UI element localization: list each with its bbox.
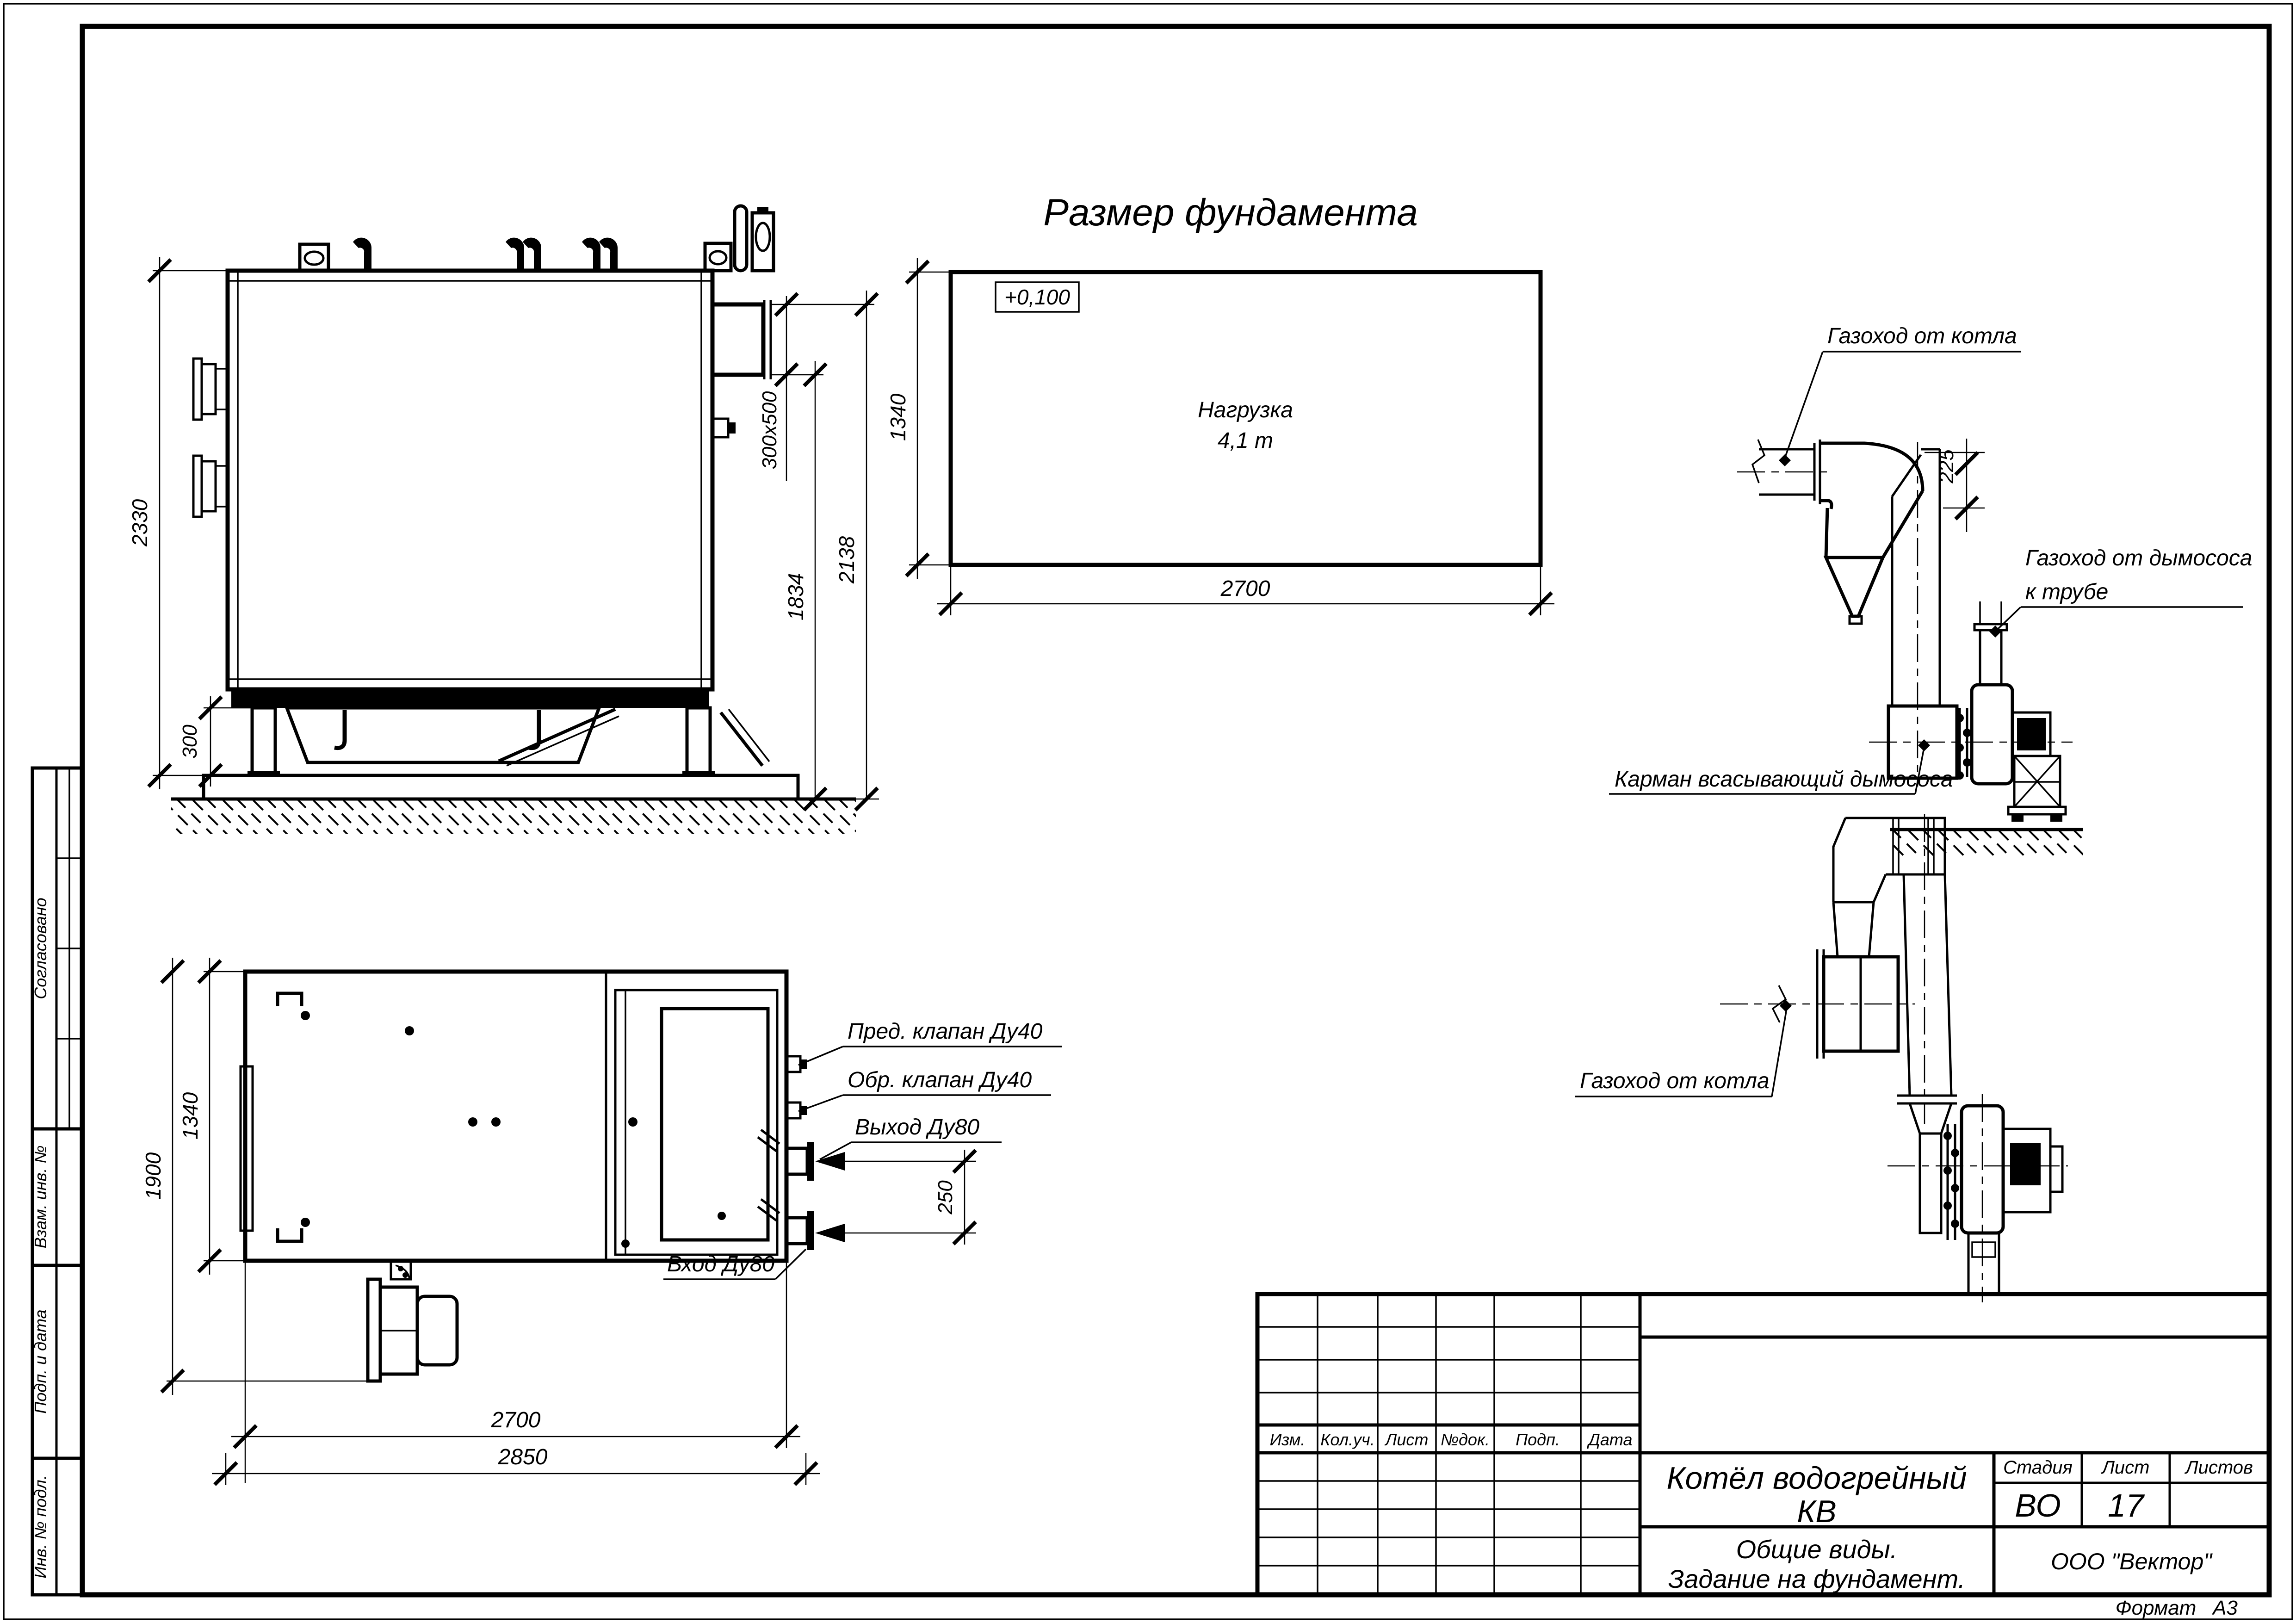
dim-plan-1900-text: 1900 xyxy=(141,1152,165,1200)
detail1-label-pocket: Карман всасывающий дымососа xyxy=(1615,767,1953,792)
dim-fp-2700: 2700 xyxy=(937,565,1554,615)
left-ports-icon xyxy=(193,359,228,517)
burner xyxy=(368,1261,457,1381)
drawing-canvas: Согласовано Взам. инв. № Подп. и дата Ин… xyxy=(0,0,2296,1623)
label-check-valve: Обр. клапан Ду40 xyxy=(848,1068,1032,1092)
detail2-fan xyxy=(1888,1094,2068,1302)
foundation-slab xyxy=(171,775,856,834)
fan-motor xyxy=(2008,712,2066,822)
dim-2330: 2330 xyxy=(128,257,228,789)
safety-valve-stack-icon xyxy=(735,206,774,271)
load-text-1: Нагрузка xyxy=(1198,398,1293,422)
stamp-inv-number: Инв. № подл. xyxy=(31,1475,50,1578)
safety-valve-stub xyxy=(786,1056,807,1072)
margin-stamps: Согласовано Взам. инв. № Подп. и дата Ин… xyxy=(31,768,82,1595)
view-title: Размер фундамента xyxy=(1043,192,1418,234)
dim-300: 300 xyxy=(179,696,252,787)
outlet-nozzle xyxy=(786,1142,845,1181)
label-inlet: Вход Ду80 xyxy=(667,1252,774,1276)
duct-detail-side: Газоход от котла 225 xyxy=(1609,324,2252,857)
detail1-label-boiler-duct: Газоход от котла xyxy=(1827,324,2017,348)
stamp-replace-inv: Взам. инв. № xyxy=(31,1146,50,1249)
dim-fp-1340-text: 1340 xyxy=(886,393,910,441)
dim-2330-text: 2330 xyxy=(128,499,152,547)
label-safety-valve: Пред. клапан Ду40 xyxy=(848,1019,1043,1044)
revision-headers: Изм. Кол.уч. Лист №док. Подп. Дата xyxy=(1270,1430,1633,1449)
skid-band xyxy=(231,689,709,708)
duct-detail-plan: Газоход от котла xyxy=(1575,814,2068,1302)
dim-plan-2850-text: 2850 xyxy=(498,1445,548,1469)
col-koluch: Кол.уч. xyxy=(1320,1430,1374,1449)
sheet-number: 17 xyxy=(2108,1487,2145,1524)
title-block: Изм. Кол.уч. Лист №док. Подп. Дата Котёл… xyxy=(1257,1294,2269,1595)
detail1-label-to-stack-2: к трубе xyxy=(2025,580,2108,604)
dim-1834-text: 1834 xyxy=(784,573,808,620)
sheets-label: Листов xyxy=(2184,1457,2253,1478)
col-podp: Подп. xyxy=(1516,1430,1560,1449)
label-outlet: Выход Ду80 xyxy=(855,1115,979,1140)
fan-casing xyxy=(1972,685,2012,784)
ground-hatch xyxy=(171,800,856,834)
format-label: Формат xyxy=(2116,1597,2197,1619)
inlet-nozzle xyxy=(786,1211,845,1250)
stamp-sign-date: Подп. и дата xyxy=(31,1309,50,1413)
dim-300x500: 300x500 xyxy=(758,293,874,481)
elevation-mark: +0,100 xyxy=(1004,285,1070,309)
col-list: Лист xyxy=(1385,1430,1429,1449)
foundation-plan: +0,100 Нагрузка 4,1 т 1340 2700 xyxy=(886,258,1554,615)
dim-fp-2700-text: 2700 xyxy=(1220,576,1270,601)
side-view: 2330 300 300x500 1834 2138 xyxy=(128,206,879,834)
dim-300-text: 300 xyxy=(179,725,201,759)
dim-plan-2850: 2850 xyxy=(212,1445,820,1485)
stamp-agreed: Согласовано xyxy=(31,898,50,999)
detail2-label-boiler-duct: Газоход от котла xyxy=(1580,1069,1770,1093)
dim-2138-text: 2138 xyxy=(835,536,859,584)
company-name: ООО "Вектор" xyxy=(2051,1549,2213,1574)
dim-plan-1340-text: 1340 xyxy=(178,1092,202,1140)
lifting-hooks-icon xyxy=(353,238,618,271)
dim-plan-1340: 1340 xyxy=(178,958,245,1275)
ash-pan xyxy=(287,708,769,766)
dim-300x500-text: 300x500 xyxy=(758,391,781,469)
product-title-1: Котёл водогрейный xyxy=(1666,1461,1967,1496)
dim-250: 250 xyxy=(845,1150,976,1245)
col-izm: Изм. xyxy=(1270,1430,1306,1449)
gas-outlet-duct xyxy=(712,300,771,379)
detail1-label-to-stack-1: Газоход от дымососа xyxy=(2025,546,2252,570)
stage-value: ВО xyxy=(2015,1487,2061,1524)
dim-fp-1340: 1340 xyxy=(886,258,951,579)
sheet-label: Лист xyxy=(2101,1457,2150,1478)
drain-stub-icon xyxy=(712,419,736,437)
plan-view: Пред. клапан Ду40 Обр. клапан Ду40 Выход… xyxy=(141,958,1062,1485)
dim-1834: 1834 xyxy=(784,361,826,810)
dim-250-text: 250 xyxy=(934,1180,957,1215)
dim-225: 225 xyxy=(1925,439,1985,532)
support-legs xyxy=(248,708,715,775)
col-data: Дата xyxy=(1587,1430,1633,1449)
format-note: Формат А3 xyxy=(2116,1597,2238,1619)
col-ndok: №док. xyxy=(1441,1430,1490,1449)
check-valve-stub xyxy=(786,1103,807,1118)
drawing-sheet: Согласовано Взам. инв. № Подп. и дата Ин… xyxy=(0,0,2296,1623)
format-value: А3 xyxy=(2211,1597,2238,1619)
doc-title-1: Общие виды. xyxy=(1736,1535,1898,1564)
load-text-2: 4,1 т xyxy=(1218,428,1273,453)
product-title-2: КВ xyxy=(1797,1494,1836,1529)
dim-plan-1900: 1900 xyxy=(141,958,368,1395)
dim-plan-2700-text: 2700 xyxy=(491,1408,541,1432)
doc-title-2: Задание на фундамент. xyxy=(1668,1564,1965,1593)
stage-label: Стадия xyxy=(2003,1457,2073,1478)
dim-2138: 2138 xyxy=(835,291,879,810)
dim-225-text: 225 xyxy=(1935,449,1958,484)
